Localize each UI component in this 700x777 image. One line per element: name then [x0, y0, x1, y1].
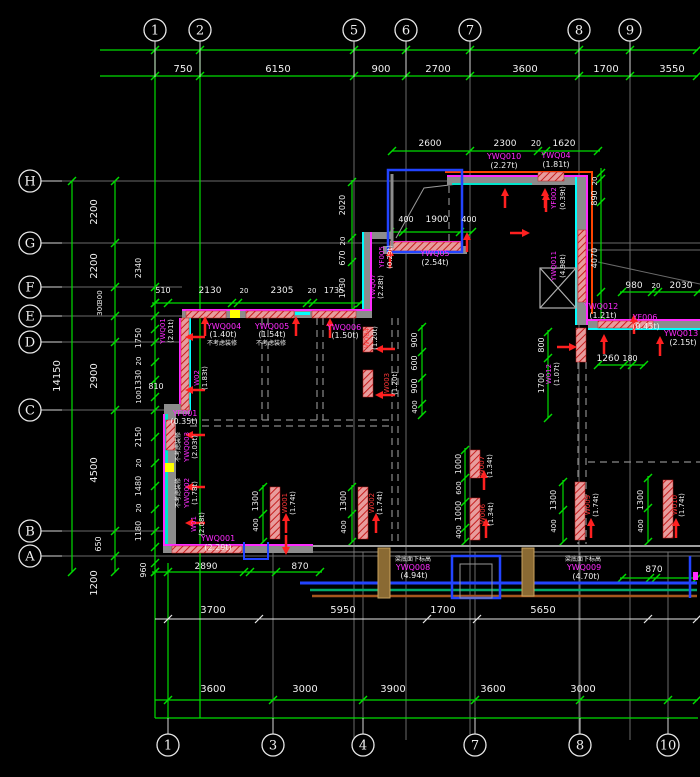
dim-text: (1.40t)	[209, 330, 236, 339]
dim-text: 2020	[338, 195, 347, 215]
grid-bubble-label: C	[25, 404, 35, 419]
grid-bubble-label: H	[24, 175, 35, 190]
grid-bubble-label: E	[25, 310, 35, 325]
dim-text: 1700	[593, 64, 618, 75]
dim-text: 870	[645, 565, 662, 575]
dim-text: 20	[135, 459, 143, 468]
dim-text: 2900	[89, 363, 100, 388]
dim-text: (1.34t)	[486, 454, 494, 478]
load-arrow-icon	[501, 188, 509, 196]
dim-text: 5950	[330, 605, 355, 616]
dim-text: 750	[173, 64, 192, 75]
dim-text: 400	[398, 215, 413, 224]
grid-bubble-label: A	[24, 550, 35, 565]
dim-text: 2890	[195, 562, 218, 572]
grid-bubble-label: 9	[626, 24, 634, 39]
wall-label: YWQ012	[583, 302, 618, 311]
dim-text: 800	[537, 337, 546, 352]
dim-text: 870	[291, 562, 308, 572]
grid-bubble-label: F	[25, 281, 34, 296]
dim-text: 不考虑装修	[174, 432, 182, 462]
dim-text: (1.74t)	[678, 493, 686, 517]
wall-label: YWQ07	[369, 274, 377, 301]
dim-text: 20	[652, 282, 661, 290]
wall-label: YWQ04	[540, 151, 570, 160]
dim-text: (1.50t)	[331, 331, 358, 340]
wall-label: W012	[545, 364, 553, 384]
dim-text: 1200	[89, 570, 100, 595]
grid-bubble-label: B	[25, 525, 35, 540]
dim-text: (1.54t)	[258, 330, 285, 339]
dim-text: (0.43t)	[632, 322, 659, 331]
wall-label: YF005	[378, 246, 386, 269]
dim-text: 20	[308, 287, 317, 295]
dim-text: (2.01t)	[167, 319, 175, 343]
dim-text: 2130	[199, 286, 222, 296]
dim-text: 1260	[597, 354, 620, 364]
dim-text: 900	[410, 378, 419, 393]
dim-text: 4070	[590, 248, 599, 268]
dim-text: 1480	[134, 476, 143, 496]
wall-label: W006	[479, 503, 487, 524]
wall-label: YWQ010	[486, 152, 521, 161]
dim-text: 梁底面下标高	[565, 555, 601, 563]
dim-text: 2150	[134, 427, 143, 447]
dim-text: 810	[148, 382, 163, 391]
dim-text: 300	[96, 290, 104, 303]
grid-bubble-label: 1	[164, 739, 172, 754]
grid-bubble-label: 7	[471, 739, 479, 754]
dim-text: (1.34t)	[487, 502, 495, 526]
dim-text: 1000	[454, 501, 463, 521]
dim-text: (1.20t)	[371, 326, 379, 350]
wall-label: YWQ002	[183, 478, 191, 509]
wall-label: W003	[383, 373, 391, 393]
dim-text: 5650	[530, 605, 555, 616]
dim-text: 6150	[265, 64, 290, 75]
load-arrow-icon	[587, 518, 595, 526]
dim-text: 2030	[670, 281, 693, 291]
dim-text: (4.98t)	[559, 254, 567, 278]
dim-text: 2200	[89, 199, 100, 224]
dim-text: 1750	[134, 328, 143, 348]
dim-text: 400	[461, 215, 476, 224]
dim-text: 1735	[324, 286, 344, 295]
wall-label: YWQ013	[663, 329, 698, 338]
dim-text: 1700	[430, 605, 455, 616]
dim-text: 20	[339, 237, 347, 246]
dim-text: 1180	[134, 521, 143, 541]
dim-text: (1.81t)	[542, 160, 569, 169]
dim-text: 400	[340, 520, 348, 533]
annotation-texts: 7506150900270036001700355026002300201620…	[52, 64, 698, 695]
dim-text: 400	[455, 525, 463, 538]
grid-bubble-label: 7	[466, 24, 474, 39]
dim-text: (1.21t)	[589, 311, 616, 320]
dim-text: 980	[625, 281, 642, 291]
dim-text: 2300	[494, 139, 517, 149]
wall-label: W004	[363, 327, 371, 348]
dim-text: 20	[240, 287, 249, 295]
grid-bubble-label: 4	[359, 739, 367, 754]
grid-bubble-label: 2	[196, 24, 204, 39]
dim-text: 400	[411, 400, 419, 413]
wall-label: YWQ003	[183, 432, 191, 463]
dim-text: (1.74t)	[289, 491, 297, 515]
dim-text: 不考虑装修	[207, 339, 237, 347]
dim-text: (1.74t)	[376, 491, 384, 515]
dim-text: 2200	[89, 253, 100, 278]
wall-label: W007	[478, 456, 486, 476]
dim-text: (2.15t)	[669, 338, 696, 347]
dim-text: 600	[455, 481, 463, 494]
dim-text: 510	[155, 286, 170, 295]
dim-text: 1300	[636, 490, 645, 510]
dim-text: 900	[371, 64, 390, 75]
dim-text: 3550	[659, 64, 684, 75]
dim-text: 20	[591, 177, 599, 186]
dim-text: (2.03t)	[191, 435, 199, 459]
wall-label: W002	[368, 493, 376, 513]
wall-label: YF002	[550, 187, 558, 210]
dim-text: 1000	[454, 454, 463, 474]
wall-label: W009	[584, 495, 592, 515]
load-arrow-icon	[375, 391, 383, 399]
dim-text: 100	[135, 390, 143, 403]
dim-text: 300	[96, 302, 104, 315]
dim-text: 1300	[549, 490, 558, 510]
dim-text: 3600	[480, 684, 505, 695]
wall-label: W001	[281, 493, 289, 513]
wall-label: W01	[190, 516, 198, 532]
dim-text: 2700	[425, 64, 450, 75]
dim-text: 1330	[134, 370, 143, 390]
grid-bubble-label: 3	[269, 739, 277, 754]
dim-text: 1900	[426, 215, 449, 225]
dim-text: 1620	[553, 139, 576, 149]
dim-text: (0.35t)	[170, 417, 197, 426]
dim-text: 1300	[251, 491, 260, 511]
grid-bubble-label: 5	[350, 24, 358, 39]
dim-text: (2.08t)	[198, 512, 206, 536]
dim-text: 960	[139, 562, 148, 577]
dim-text: (2.28t)	[377, 275, 385, 299]
dim-text: 3700	[200, 605, 225, 616]
wall-label: YF006	[632, 313, 658, 322]
load-arrow-icon	[600, 334, 608, 342]
dim-text: 14150	[52, 360, 63, 392]
dim-text: (1.20t)	[391, 371, 399, 395]
wall-label: YWQ009	[566, 563, 601, 572]
wall-label: YWQ001	[200, 534, 235, 543]
load-arrow-icon	[656, 336, 664, 344]
dim-text: 20	[135, 504, 143, 513]
dim-text: 2305	[271, 286, 294, 296]
grid-bubble-label: 10	[660, 739, 677, 754]
wall-label: YWQ05	[419, 249, 449, 258]
dim-text: 不考虑装修	[174, 478, 182, 508]
dim-text: 3000	[570, 684, 595, 695]
wall-label: YWQ01	[159, 318, 167, 345]
wall-label: YWQ011	[550, 251, 558, 282]
dim-text: 4500	[89, 457, 100, 482]
dim-text: 3000	[292, 684, 317, 695]
cad-canvas: 12567891347810HGFEDCBA 75061509002700360…	[0, 0, 700, 777]
dim-text: 3900	[380, 684, 405, 695]
dim-text: (1.74t)	[592, 493, 600, 517]
dim-text: 600	[410, 355, 419, 370]
wall-label: W02	[193, 370, 201, 386]
dim-text: 900	[410, 332, 419, 347]
dim-text: 2340	[134, 258, 143, 278]
grid-bubble-label: 1	[151, 24, 159, 39]
dim-text: (1.83t)	[201, 366, 209, 390]
dim-text: 2600	[419, 139, 442, 149]
dim-text: 400	[550, 519, 558, 532]
dim-text: (4.70t)	[572, 572, 599, 581]
dim-text: (1.78t)	[191, 481, 199, 505]
grid-bubble-label: 8	[575, 24, 583, 39]
load-arrow-icon	[522, 229, 530, 237]
dim-text: 180	[622, 354, 637, 363]
dim-text: 400	[252, 518, 260, 531]
shaft-box	[540, 268, 576, 308]
dim-text: (4.94t)	[400, 571, 427, 580]
dim-text: 20	[135, 357, 143, 366]
dim-text: 1300	[339, 491, 348, 511]
grid-bubble-label: G	[25, 237, 35, 252]
grid-bubble-label: 6	[402, 24, 410, 39]
cad-floor-plan: 12567891347810HGFEDCBA 75061509002700360…	[0, 0, 700, 777]
dim-text: 650	[94, 536, 103, 551]
dim-text: (1.07t)	[553, 362, 561, 386]
dim-text: (0.29t)	[386, 245, 394, 269]
dim-text: 20	[531, 139, 541, 148]
dim-text: 890	[590, 190, 599, 205]
dim-text: 梁底面下标高	[395, 555, 431, 563]
dim-text: 3600	[512, 64, 537, 75]
dim-text: (2.27t)	[490, 161, 517, 170]
dim-text: 400	[637, 519, 645, 532]
grid-bubble-label: D	[25, 336, 35, 351]
dim-text: 670	[338, 250, 347, 265]
dim-text: (2.54t)	[421, 258, 448, 267]
dim-text: 3600	[200, 684, 225, 695]
dim-text: (0.39t)	[559, 186, 567, 210]
dim-text: 不考虑装修	[256, 339, 286, 347]
dim-text: (2.29t)	[204, 543, 231, 552]
grid-bubble-label: 8	[576, 739, 584, 754]
